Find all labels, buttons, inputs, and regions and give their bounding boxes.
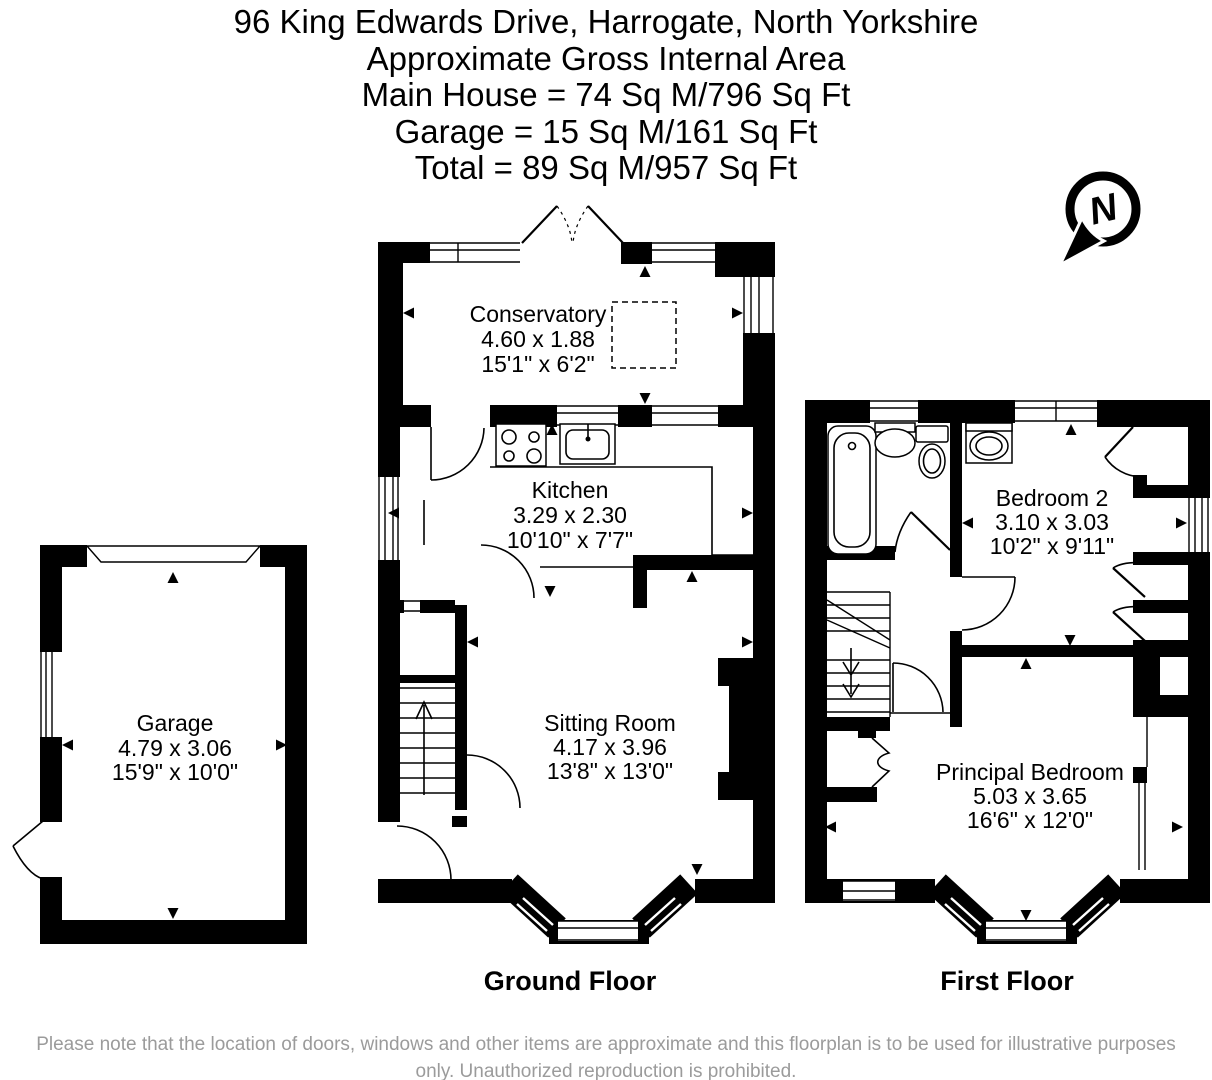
room-metric: 4.17 x 3.96: [553, 734, 667, 760]
garage-door-opening: [87, 546, 260, 562]
bathroom-sink-icon: [875, 423, 915, 457]
ground-floor-plan: Conservatory 4.60 x 1.88 15'1" x 6'2" Ki…: [378, 206, 775, 944]
wall-break-zigzag: [872, 738, 889, 787]
room-label-kitchen: Kitchen 3.29 x 2.30 10'10" x 7'7": [507, 477, 633, 553]
bay-window: [378, 879, 775, 944]
staircase-down: [827, 592, 890, 717]
room-metric: 3.29 x 2.30: [513, 502, 627, 528]
disclaimer-text: Please note that the location of doors, …: [30, 1031, 1182, 1080]
room-label-bedroom-2: Bedroom 2 3.10 x 3.03 10'2" x 9'11": [990, 485, 1114, 559]
room-metric: 3.10 x 3.03: [995, 509, 1109, 535]
garage-plan: Garage 4.79 x 3.06 15'9" x 10'0": [13, 545, 307, 944]
cooker-hob-icon: [496, 424, 546, 466]
room-label-sitting-room: Sitting Room 4.17 x 3.96 13'8" x 13'0": [544, 710, 676, 784]
rooflight-dashed-outline: [612, 302, 676, 368]
room-metric: 4.60 x 1.88: [481, 326, 595, 352]
room-name: Sitting Room: [544, 710, 676, 736]
bedroom-sink-icon: [966, 423, 1012, 463]
room-imperial: 15'1" x 6'2": [481, 351, 594, 377]
room-metric: 4.79 x 3.06: [118, 735, 232, 761]
north-compass-icon: N: [1060, 176, 1136, 265]
kitchen-sink-icon: [560, 424, 615, 464]
room-imperial: 15'9" x 10'0": [112, 759, 238, 785]
room-name: Bedroom 2: [996, 485, 1109, 511]
ground-floor-label: Ground Floor: [370, 966, 770, 997]
room-imperial: 10'2" x 9'11": [990, 533, 1114, 559]
wardrobe-sliding-doors: [1139, 717, 1147, 870]
french-doors: [522, 206, 623, 244]
staircase-up: [400, 688, 455, 795]
bay-window: [805, 879, 1210, 944]
room-name: Conservatory: [470, 301, 607, 327]
room-label-principal-bedroom: Principal Bedroom 5.03 x 3.65 16'6" x 12…: [936, 759, 1124, 833]
room-metric: 5.03 x 3.65: [973, 783, 1087, 809]
first-floor-label: First Floor: [807, 966, 1207, 997]
room-imperial: 10'10" x 7'7": [507, 527, 633, 553]
compass-n-label: N: [1085, 186, 1123, 234]
window: [404, 600, 420, 613]
floorplan-page: 96 King Edwards Drive, Harrogate, North …: [0, 0, 1212, 1080]
first-floor-plan: Bedroom 2 3.10 x 3.03 10'2" x 9'11" Prin…: [805, 400, 1210, 944]
room-label-garage: Garage 4.79 x 3.06 15'9" x 10'0": [112, 710, 238, 785]
room-imperial: 13'8" x 13'0": [547, 758, 673, 784]
chimney-breast: [718, 658, 753, 800]
room-name: Kitchen: [532, 477, 609, 503]
floorplan-drawing: N: [0, 0, 1212, 1080]
room-imperial: 16'6" x 12'0": [967, 807, 1093, 833]
window: [40, 652, 62, 737]
door-arc: [13, 821, 43, 879]
toilet-icon: [916, 426, 948, 478]
bathtub-icon: [828, 426, 876, 554]
kitchen-right-walls: [633, 405, 775, 879]
room-name: Principal Bedroom: [936, 759, 1124, 785]
room-label-conservatory: Conservatory 4.60 x 1.88 15'1" x 6'2": [470, 301, 607, 377]
room-name: Garage: [137, 710, 214, 736]
window: [378, 477, 400, 560]
